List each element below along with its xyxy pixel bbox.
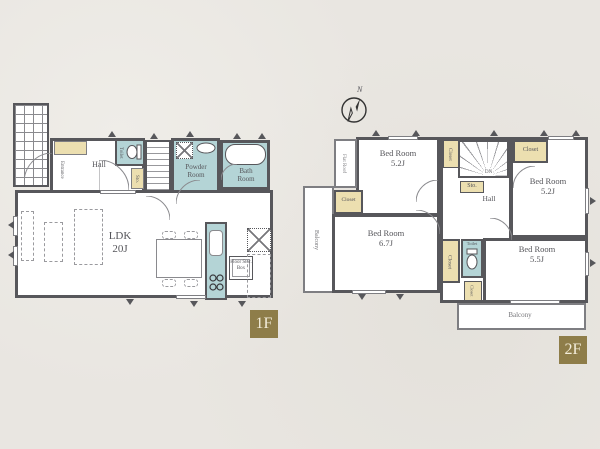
door-arc: [416, 180, 438, 202]
window-marker: [233, 133, 241, 139]
window-marker: [572, 130, 580, 136]
window-marker: [150, 133, 158, 139]
window: [510, 300, 560, 304]
dining-chair: [184, 231, 198, 239]
refrigerator-space: [247, 254, 271, 298]
window-marker: [412, 130, 420, 136]
window-marker: [190, 301, 198, 307]
bed-top-left-label: Bed Room 5.2J: [378, 148, 418, 168]
compass-icon: [339, 91, 371, 125]
window: [100, 190, 136, 194]
hall-label-2f: Hall: [476, 195, 502, 204]
window: [585, 252, 589, 276]
bed-name: Bed Room: [380, 148, 417, 158]
stairs-down-label: DN: [484, 170, 493, 176]
bed-name: Bed Room: [530, 176, 567, 186]
window-marker: [8, 251, 14, 259]
flat-roof-label: Flat Roof: [340, 145, 346, 183]
bed-size: 5.5J: [517, 254, 557, 264]
toilet-label-2f: Toilet: [461, 241, 483, 246]
closet-2f-left-label: Closet: [334, 197, 363, 203]
dining-table: [156, 239, 202, 278]
balcony-left-label: Balcony: [312, 215, 319, 265]
bed-bottom-right-label: Bed Room 5.5J: [517, 244, 557, 264]
compass-north-label: N: [357, 85, 362, 94]
door-arc: [176, 180, 200, 204]
door-arc: [416, 210, 440, 234]
door-arc: [221, 164, 237, 180]
sink-icon: [196, 142, 216, 154]
window-marker: [108, 131, 116, 137]
closet-2f-topcenter-label: Closet: [446, 142, 452, 166]
window-marker: [8, 221, 14, 229]
bed-name: Bed Room: [519, 244, 556, 254]
storage-2f-label: Sto.: [460, 183, 484, 190]
window: [388, 136, 418, 140]
bed-size: 6.7J: [366, 238, 406, 248]
window-marker: [372, 130, 380, 136]
window-marker: [186, 131, 194, 137]
door-arc: [146, 196, 170, 220]
window: [585, 188, 589, 214]
bed-bottom-left-label: Bed Room 6.7J: [366, 228, 406, 248]
kitchen-sink: [209, 230, 223, 256]
closet-2f-mid-label: Closet: [446, 246, 452, 278]
tv-board: [21, 211, 34, 261]
bed-size: 5.2J: [378, 158, 418, 168]
sofa: [74, 209, 103, 265]
floor-tag-1f: 1F: [250, 310, 278, 338]
storage-1f-a-label: Sto.: [133, 170, 139, 187]
window-marker: [238, 301, 246, 307]
powder-room-label: Powder Room: [178, 163, 214, 180]
closet-2f-topright-label: Closet: [513, 147, 548, 154]
cupboard-icon: [247, 228, 271, 252]
window-marker: [358, 294, 366, 300]
floorplan-canvas: Entrance Hall Toilet Sto. Powder Room Ba…: [0, 0, 600, 449]
window-marker: [126, 299, 134, 305]
entrance-label: Entrance: [58, 150, 64, 190]
window-marker: [490, 130, 498, 136]
window-marker: [540, 130, 548, 136]
window: [548, 136, 574, 140]
dining-chair: [184, 279, 198, 287]
bed-name: Bed Room: [368, 228, 405, 238]
window-marker: [590, 259, 596, 267]
low-table: [44, 222, 63, 262]
washing-machine-icon: [176, 142, 193, 159]
closet-2f-small-label: Closet: [469, 282, 474, 300]
toilet-icon-2f: [465, 248, 479, 274]
window: [176, 295, 206, 299]
bathtub-icon: [225, 144, 266, 165]
floor-tag-2f: 2F: [559, 336, 587, 364]
window-marker: [396, 294, 404, 300]
door-arc: [513, 166, 535, 188]
door-arc: [99, 160, 129, 190]
stove-icon: [208, 272, 225, 294]
dining-chair: [162, 279, 176, 287]
window-marker: [258, 133, 266, 139]
dining-chair: [162, 231, 176, 239]
window-marker: [590, 197, 596, 205]
balcony-bottom-label: Balcony: [490, 311, 550, 319]
door-arc: [490, 218, 512, 240]
door-arc: [24, 153, 52, 183]
